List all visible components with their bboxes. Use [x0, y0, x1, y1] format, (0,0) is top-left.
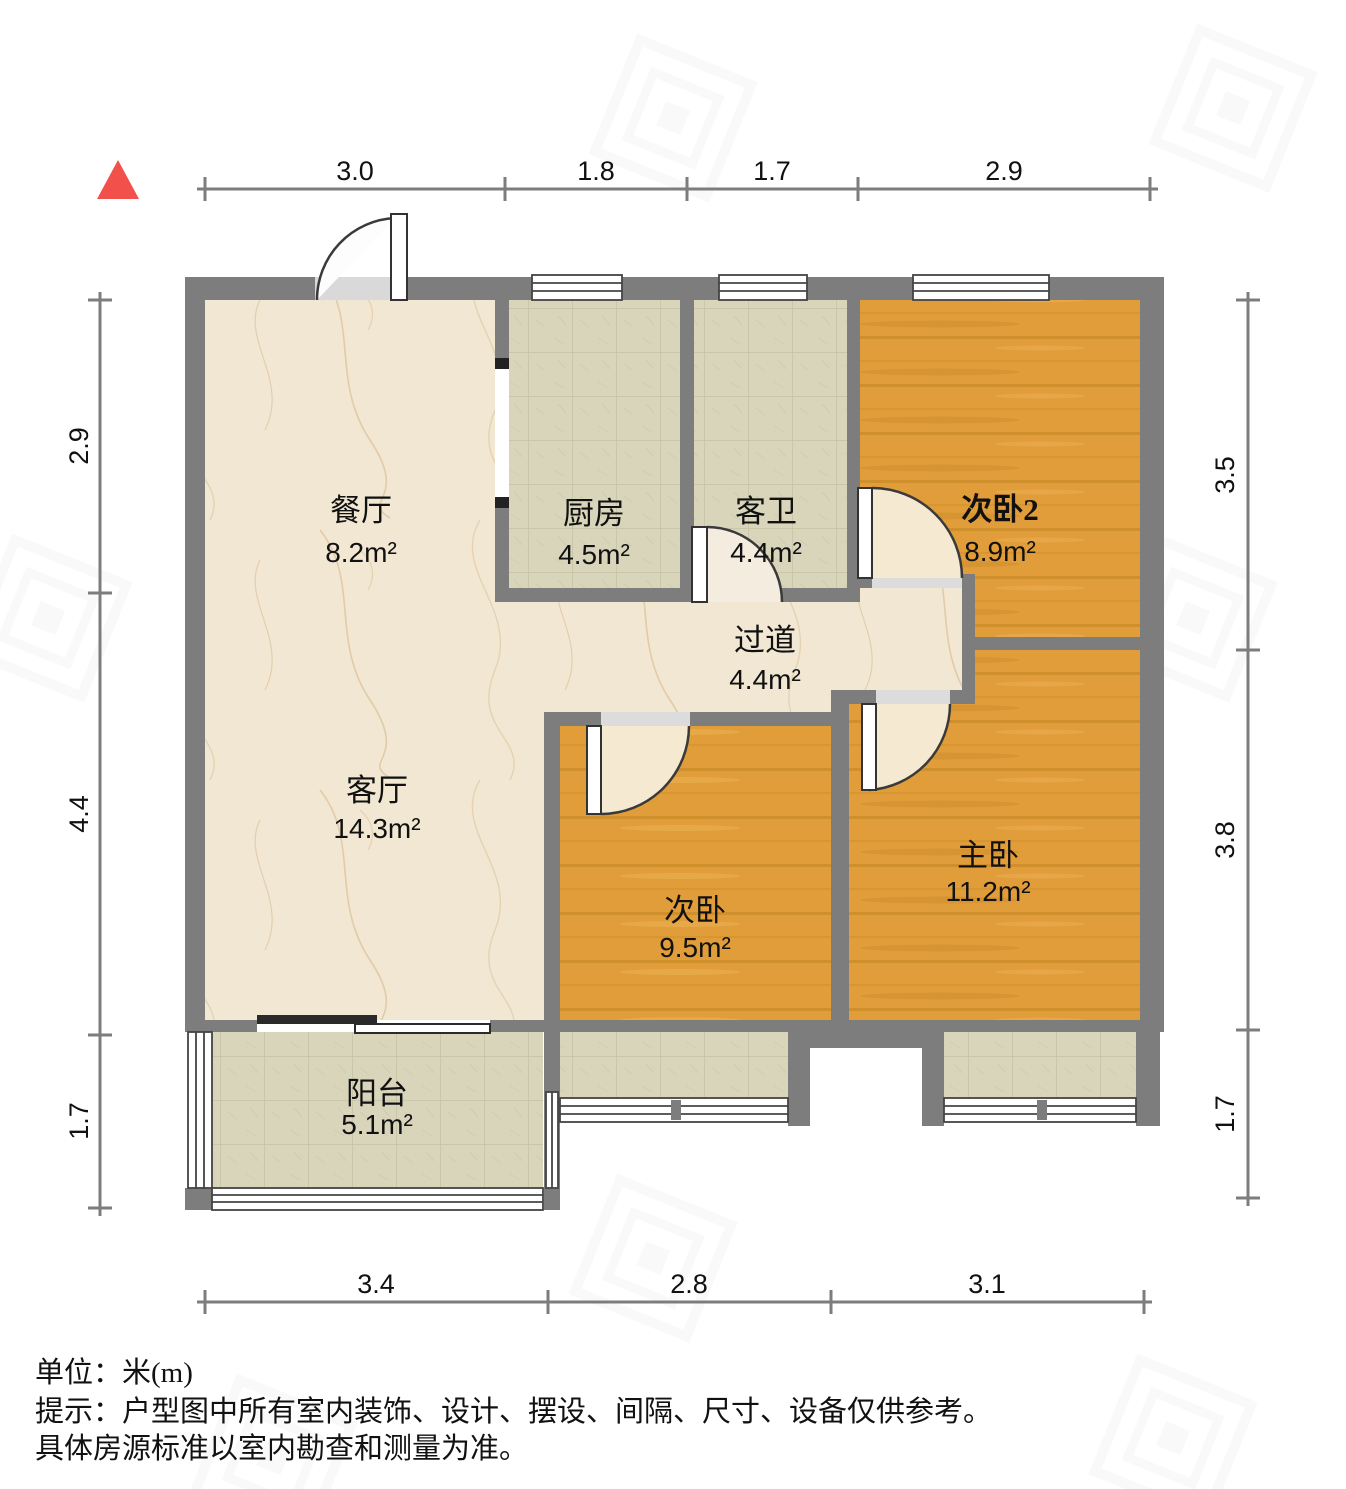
wall-bedroom2-master-divider [975, 637, 1140, 650]
dim-right-1: 3.5 [1210, 456, 1240, 494]
wall-exterior-right [1140, 300, 1164, 1032]
dim-left-3: 1.7 [64, 1102, 94, 1140]
room-name-dining: 餐厅 [330, 493, 392, 528]
sliding-panel-light [355, 1024, 490, 1033]
floorplan-drawing: 3.0 1.8 1.7 2.9 2.9 4.4 1.7 3.5 3.8 1.7 … [0, 0, 1346, 1489]
dim-bottom-1: 3.4 [357, 1269, 395, 1299]
dim-top-3: 1.7 [753, 156, 791, 186]
room-area-bedroom2: 8.9m² [964, 536, 1036, 567]
room-area-master: 11.2m² [945, 876, 1030, 907]
room-area-balcony: 5.1m² [341, 1109, 413, 1140]
dim-top-4: 2.9 [985, 156, 1023, 186]
dim-left-2: 4.4 [64, 795, 94, 833]
window-balcony-left [188, 1032, 212, 1188]
room-label-master: 主卧 11.2m² [945, 838, 1030, 907]
footer-tip-line2: 具体房源标准以室内勘查和测量为准。 [35, 1432, 528, 1465]
kitchen-opening-frame-top [495, 358, 509, 369]
bedroom-door-leaf [587, 726, 601, 814]
sliding-panel-dark [257, 1015, 377, 1024]
wall-bay-master-right [1136, 1032, 1160, 1126]
entry-door-leaf [391, 214, 407, 300]
window-balcony-bottom [212, 1188, 543, 1210]
room-area-dining: 8.2m² [325, 537, 397, 568]
floorplan-page: 3.0 1.8 1.7 2.9 2.9 4.4 1.7 3.5 3.8 1.7 … [0, 0, 1346, 1489]
wall-bedroom-master [831, 690, 849, 1032]
bedroom-door-opening [601, 712, 690, 726]
master-door-leaf [862, 704, 876, 790]
window-bay-bedroom [560, 1098, 788, 1122]
dim-top-2: 1.8 [577, 156, 615, 186]
wall-bay-bedroom-right [788, 1032, 810, 1126]
room-name-corridor: 过道 [734, 623, 796, 658]
dim-top-1: 3.0 [336, 156, 374, 186]
dim-bottom-2: 2.8 [670, 1269, 708, 1299]
room-name-kitchen: 厨房 [563, 496, 625, 531]
wall-living-bottom-right [490, 1020, 544, 1032]
room-name-living: 客厅 [346, 773, 408, 808]
room-name-master: 主卧 [957, 838, 1019, 873]
room-label-balcony: 阳台 5.1m² [341, 1076, 413, 1140]
room-name-bedroom: 次卧 [664, 893, 726, 928]
wall-bay-master-left [922, 1032, 944, 1126]
window-bay-master [944, 1098, 1136, 1122]
footer-tip-line: 提示：户型图中所有室内装饰、设计、摆设、间隔、尺寸、设备仅供参考。 [35, 1395, 992, 1428]
dim-right-3: 1.7 [1210, 1095, 1240, 1133]
window-guest-bath [719, 275, 807, 300]
bath-door-leaf [692, 527, 707, 602]
kitchen-opening-frame-bottom [495, 497, 509, 508]
wall-kitchen-bath-bottom [495, 588, 860, 602]
dim-left-1: 2.9 [64, 427, 94, 465]
window-bedroom2 [913, 275, 1049, 300]
footer-disclaimer: 单位：米(m) 提示：户型图中所有室内装饰、设计、摆设、间隔、尺寸、设备仅供参考… [35, 1356, 992, 1465]
window-balcony-right [546, 1092, 558, 1188]
floor-bay-master [944, 1032, 1136, 1098]
master-door-opening [876, 690, 950, 704]
room-area-living: 14.3m² [333, 813, 420, 844]
footer-unit-line: 单位：米(m) [35, 1356, 193, 1389]
wall-exterior-left [185, 300, 205, 1032]
wall-living-bottom-left [205, 1020, 257, 1032]
room-name-guest-bath: 客卫 [735, 494, 797, 529]
dim-bottom-3: 3.1 [968, 1269, 1006, 1299]
room-name-bedroom2: 次卧2 [961, 492, 1039, 527]
wall-kitchen-left-bottom [495, 508, 509, 602]
window-kitchen [532, 275, 622, 300]
north-indicator-icon [97, 160, 139, 199]
wall-corridor-right [962, 574, 975, 704]
kitchen-opening-gap [495, 369, 509, 497]
wall-balcony-corner-post [185, 1188, 212, 1210]
bedroom2-door-leaf [858, 488, 872, 578]
room-area-kitchen: 4.5m² [558, 539, 630, 570]
wall-kitchen-left-top [495, 300, 509, 358]
floor-bay-bedroom [560, 1032, 788, 1098]
room-name-balcony: 阳台 [346, 1076, 408, 1111]
dim-right-2: 3.8 [1210, 821, 1240, 859]
room-area-corridor: 4.4m² [729, 664, 801, 695]
wall-corridor-bottom [544, 712, 845, 726]
room-area-guest-bath: 4.4m² [730, 537, 802, 568]
room-area-bedroom: 9.5m² [659, 932, 731, 963]
wall-notch-top [810, 1020, 922, 1048]
